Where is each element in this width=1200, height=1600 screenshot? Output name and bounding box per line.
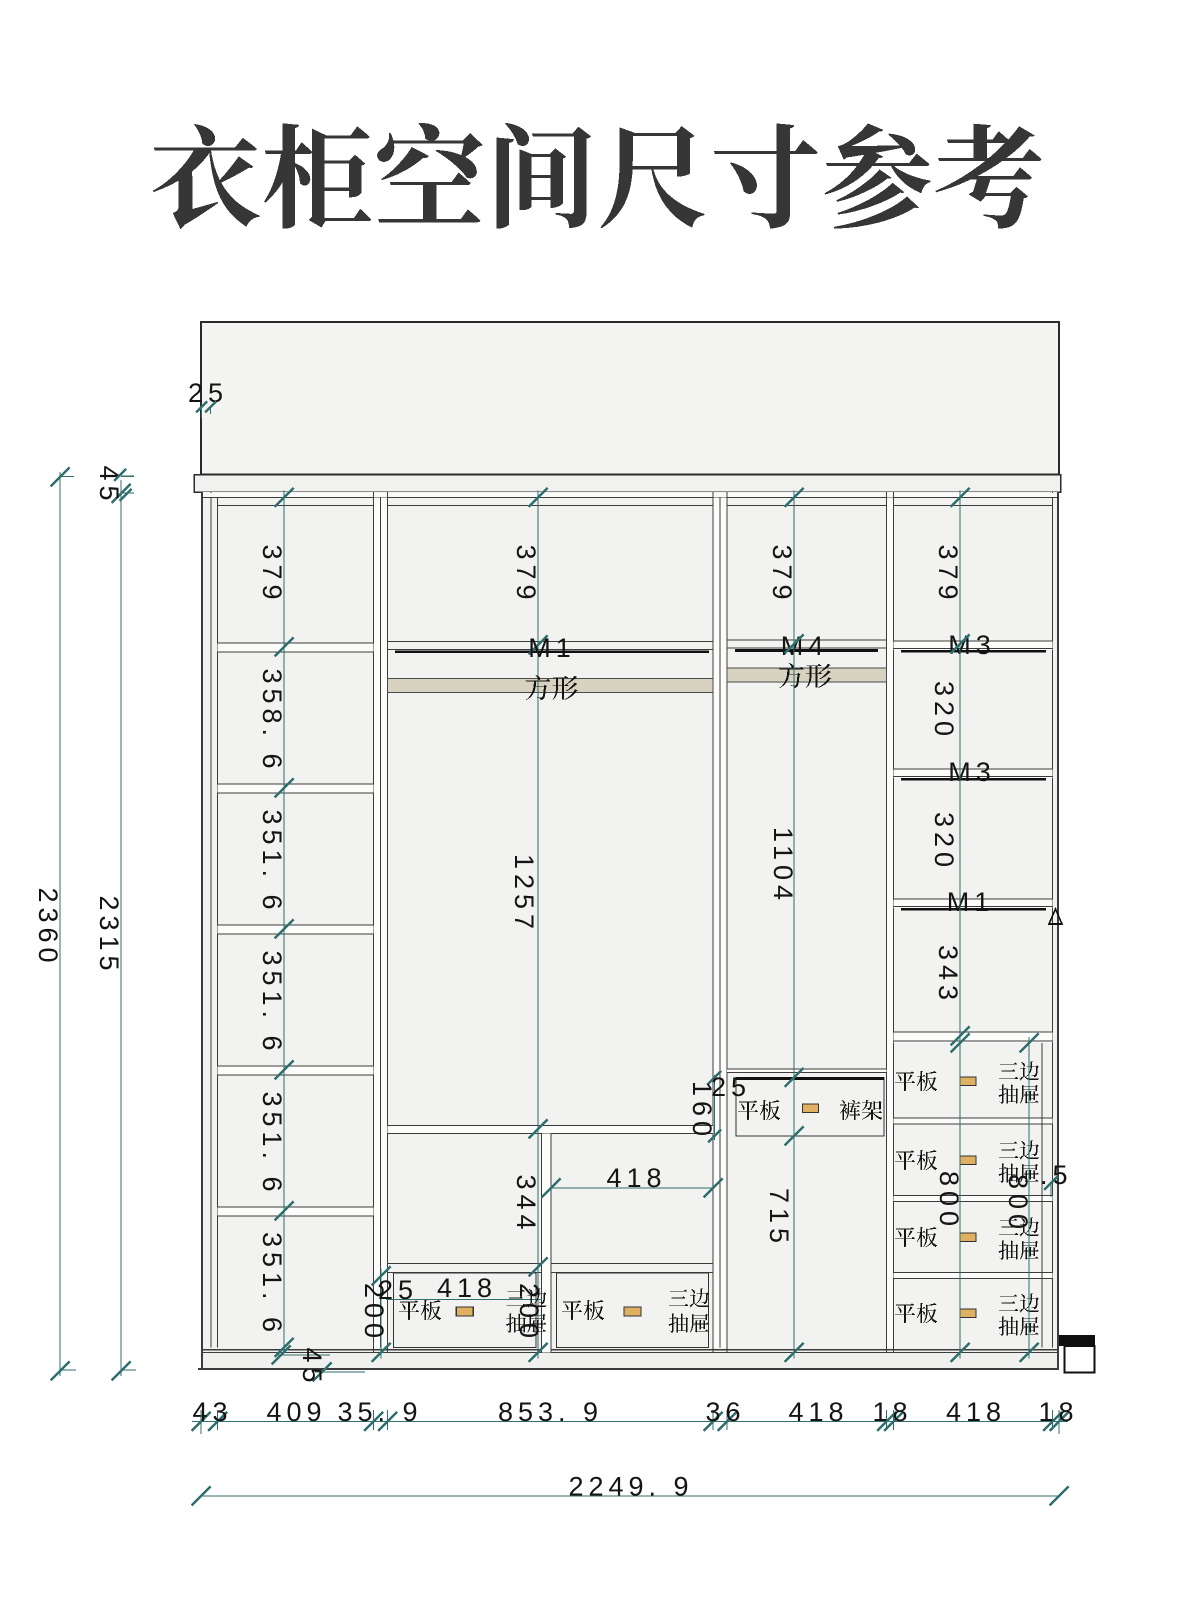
svg-text:853. 9: 853. 9 [498, 1397, 603, 1427]
svg-text:200: 200 [359, 1283, 389, 1343]
svg-text:418: 418 [946, 1397, 1006, 1427]
svg-text:M4: M4 [781, 631, 829, 661]
svg-text:418: 418 [606, 1163, 666, 1193]
svg-text:18: 18 [872, 1397, 912, 1427]
svg-text:160: 160 [687, 1081, 717, 1141]
svg-text:418: 418 [437, 1273, 497, 1303]
svg-text:351. 6: 351. 6 [257, 1091, 287, 1196]
svg-text:379: 379 [257, 544, 287, 604]
svg-text:320: 320 [929, 681, 959, 741]
svg-text:358. 6: 358. 6 [257, 668, 287, 773]
svg-text:43: 43 [192, 1397, 232, 1427]
svg-text:379: 379 [767, 544, 797, 604]
svg-text:.5: .5 [1040, 1160, 1073, 1190]
svg-text:36: 36 [705, 1397, 745, 1427]
svg-text:800: 800 [1003, 1174, 1033, 1234]
svg-text:320: 320 [929, 812, 959, 872]
svg-text:379: 379 [511, 544, 541, 604]
svg-text:45: 45 [297, 1347, 327, 1387]
svg-text:2315: 2315 [94, 895, 124, 975]
svg-text:2249. 9: 2249. 9 [568, 1472, 693, 1502]
svg-text:M1: M1 [528, 633, 576, 663]
svg-text:344: 344 [511, 1174, 541, 1234]
svg-text:409: 409 [266, 1397, 326, 1427]
svg-text:351. 6: 351. 6 [257, 950, 287, 1055]
svg-text:351. 6: 351. 6 [257, 809, 287, 914]
svg-text:715: 715 [764, 1188, 794, 1248]
svg-text:351. 6: 351. 6 [257, 1232, 287, 1337]
svg-text:M3: M3 [948, 630, 996, 660]
svg-text:379: 379 [933, 544, 963, 604]
svg-text:M1: M1 [947, 887, 995, 917]
svg-text:1257: 1257 [509, 854, 539, 934]
svg-text:M3: M3 [948, 757, 996, 787]
svg-text:2360: 2360 [33, 887, 63, 967]
svg-text:800: 800 [934, 1171, 964, 1231]
svg-text:25: 25 [188, 378, 228, 408]
svg-text:35. 9: 35. 9 [337, 1397, 422, 1427]
svg-text:343: 343 [933, 945, 963, 1005]
svg-text:418: 418 [788, 1397, 848, 1427]
